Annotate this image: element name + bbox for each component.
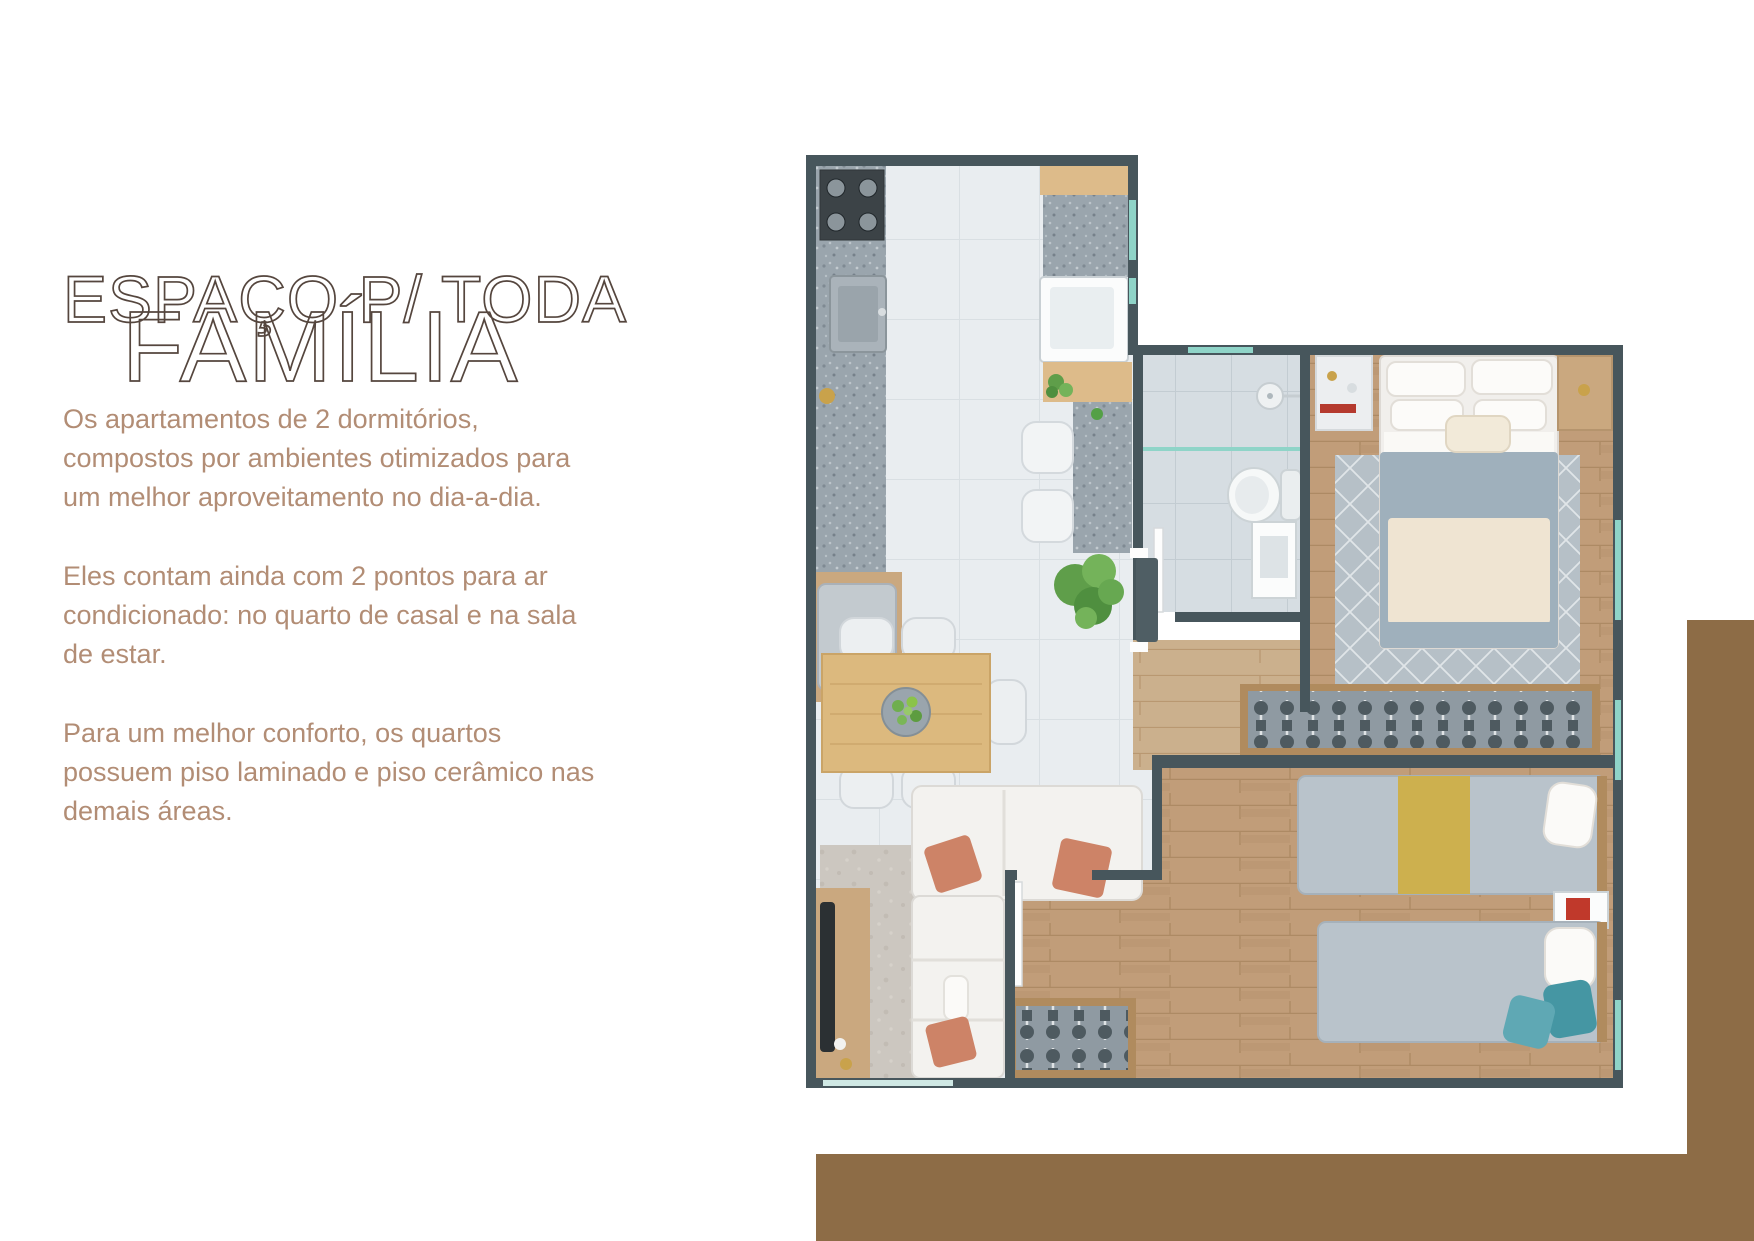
service-shelf-wood: [1040, 162, 1132, 195]
window-bathroom: [1188, 347, 1253, 353]
shower-head-center: [1267, 393, 1273, 399]
window-living-bottom: [823, 1080, 953, 1086]
single-bed-1-yellow-blanket: [1398, 776, 1470, 894]
laundry-tank-basin: [1050, 287, 1114, 349]
accent-bar-vertical: [1687, 620, 1754, 1241]
master-wardrobe-rack: [1248, 691, 1592, 748]
second-wardrobe-rack: [1016, 1006, 1128, 1070]
small-cushion: [1446, 416, 1510, 452]
nightstand-right-gold-item: [1578, 384, 1590, 396]
window-service-2: [1129, 278, 1136, 304]
shower-glass: [1143, 447, 1300, 451]
toilet-tank: [1281, 470, 1301, 520]
gold-pot: [819, 388, 835, 404]
wall-nook-left: [1005, 870, 1015, 1078]
nightstand-decor: [1347, 383, 1357, 393]
wall-master-bed2: [1160, 755, 1613, 768]
white-pillow: [944, 976, 968, 1020]
service-counter-granite-bottom: [1073, 402, 1132, 553]
service-counter-granite-top: [1043, 195, 1132, 277]
red-books: [1320, 404, 1356, 413]
wall-bath-bottom-b: [1175, 612, 1310, 622]
wall-bed2-upper-left: [1152, 755, 1162, 880]
green-item: [1091, 408, 1103, 420]
kitchen-sink-basin: [838, 286, 878, 342]
window-master-right: [1615, 520, 1621, 620]
wall-nook-top-b: [1092, 870, 1162, 880]
bed-duvet-foot: [1382, 622, 1556, 646]
single-bed-1-headboard: [1597, 776, 1607, 894]
window-bed2-right-2: [1615, 1000, 1621, 1070]
hall-door-leaf: [1136, 558, 1158, 642]
red-decor-item: [1566, 898, 1590, 920]
decor-knob-2: [840, 1058, 852, 1070]
accent-bar-bottom: [816, 1154, 1754, 1241]
window-service-1: [1129, 200, 1136, 260]
single-bed-2-pillow-white: [1545, 928, 1595, 988]
brochure-page: ESPAÇO P/ TODA FAMÍLIA Os apartamentos d…: [0, 0, 1754, 1241]
stove: [820, 170, 884, 240]
tv: [820, 902, 835, 1052]
window-bed2-right-1: [1615, 700, 1621, 780]
floor-plan-render: [0, 0, 1754, 1241]
nightstand-left: [1316, 356, 1372, 430]
hall-door-frame-bottom: [1130, 642, 1148, 652]
wall-bath-right: [1300, 345, 1310, 622]
kitchen-faucet: [878, 308, 886, 316]
wall-top: [806, 155, 1138, 166]
bed-blanket: [1388, 518, 1550, 624]
decor-knob-1: [834, 1038, 846, 1050]
counter-stool-1: [1022, 422, 1073, 473]
toilet-seat: [1235, 476, 1269, 514]
coral-pillow-2: [1051, 837, 1113, 899]
single-bed-1-pillow: [1542, 781, 1598, 849]
single-bed-2-headboard: [1597, 922, 1607, 1042]
wall-master-left: [1300, 622, 1310, 712]
lamp-gold: [1327, 371, 1337, 381]
vanity-basin: [1260, 536, 1288, 578]
counter-stool-2: [1022, 490, 1073, 542]
wall-left: [806, 155, 816, 1088]
hall-door-frame-top: [1130, 548, 1148, 558]
